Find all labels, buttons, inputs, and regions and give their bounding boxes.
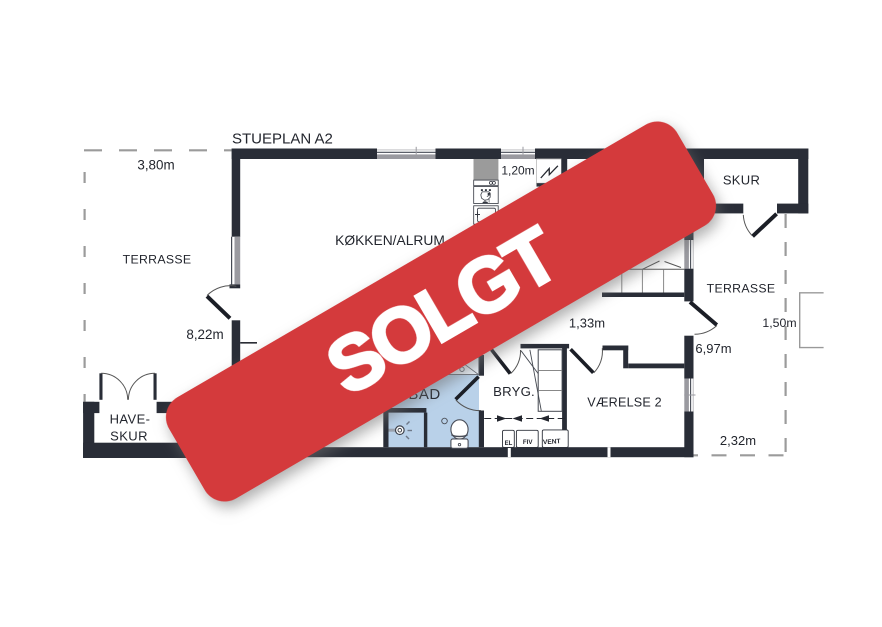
svg-text:VÆRELSE 2: VÆRELSE 2 (587, 395, 662, 409)
svg-text:KØKKEN/ALRUM: KØKKEN/ALRUM (335, 233, 445, 248)
svg-text:1,33m: 1,33m (569, 315, 605, 330)
svg-text:3,80m: 3,80m (137, 158, 174, 173)
svg-text:FIV: FIV (523, 439, 533, 446)
svg-text:1,20m: 1,20m (501, 163, 534, 177)
svg-text:STUEPLAN A2: STUEPLAN A2 (232, 131, 333, 148)
svg-text:HAVE-: HAVE- (110, 411, 151, 426)
svg-text:2,32m: 2,32m (720, 433, 756, 448)
svg-text:8,22m: 8,22m (186, 327, 223, 342)
svg-text:SKUR: SKUR (723, 173, 760, 188)
svg-text:SKUR: SKUR (110, 428, 148, 443)
svg-text:1,50m: 1,50m (762, 316, 796, 330)
svg-text:TERRASSE: TERRASSE (707, 282, 776, 296)
svg-text:BRYG.: BRYG. (493, 384, 535, 399)
svg-text:TERRASSE: TERRASSE (123, 253, 192, 267)
svg-text:6,97m: 6,97m (695, 341, 731, 356)
svg-text:VENT: VENT (543, 438, 561, 446)
svg-text:EL: EL (505, 441, 513, 447)
